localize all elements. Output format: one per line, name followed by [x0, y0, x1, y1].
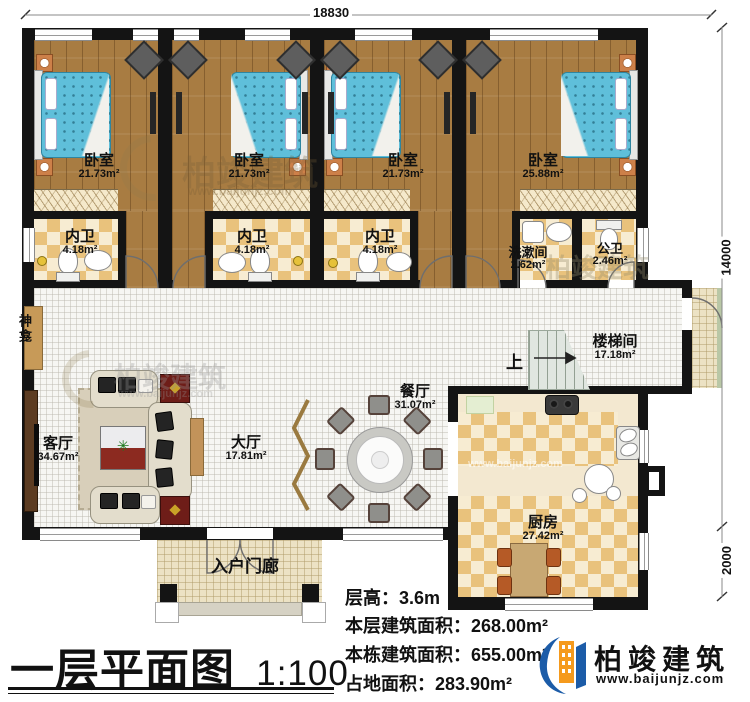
kitchen-bowl — [606, 486, 621, 501]
title-underline-thin — [8, 693, 334, 694]
side-table — [160, 496, 190, 525]
title-underline — [8, 687, 334, 690]
room-label-ensuite1: 内卫4.18m² — [63, 229, 98, 256]
window-public-bath — [637, 228, 649, 262]
room-label-bedroom2: 卧室21.73m² — [229, 153, 270, 180]
floor-drain — [37, 256, 47, 266]
wall-hall-top-7 — [634, 280, 692, 288]
bed-fold — [231, 72, 259, 156]
wall-hall-top-3 — [205, 280, 420, 288]
room-label-porch: 入户门廊 — [211, 558, 279, 576]
side-table — [160, 374, 190, 403]
door-panel — [470, 92, 476, 134]
door-panel — [176, 92, 182, 134]
window-bedroom3 — [355, 29, 412, 41]
room-label-stairwell: 楼梯间17.18m² — [592, 334, 637, 361]
wardrobe-bedroom4 — [520, 189, 636, 213]
sofa-cushion — [138, 379, 153, 393]
bed-pillow — [335, 118, 347, 150]
sofa-cushion — [141, 495, 156, 509]
porch-side-step — [155, 602, 179, 623]
room-label-washroom: 洗漱间2.62m² — [508, 246, 547, 271]
dining-chair — [368, 395, 390, 415]
window-bedroom1-a — [35, 29, 92, 41]
sofa-cushion — [155, 411, 174, 432]
kitchen-chair — [546, 548, 561, 567]
room-label-bedroom3: 卧室21.73m² — [383, 153, 424, 180]
dining-chair — [423, 448, 443, 470]
window-bedroom2-a — [174, 29, 199, 41]
stove-burner — [549, 399, 559, 409]
washroom-sink — [546, 222, 572, 242]
table-ornament — [169, 382, 180, 393]
kitchen-chair — [497, 548, 512, 567]
sofa-cushion — [100, 493, 118, 509]
window-kitchen-bottom — [505, 598, 593, 611]
bed-fold — [561, 72, 589, 156]
info-footprint-area: 占地面积：283.90m² — [345, 670, 512, 696]
kitchen-flue-inner — [649, 472, 659, 490]
sideboard — [190, 418, 204, 476]
porch-column — [302, 584, 319, 603]
porch-column — [160, 584, 177, 603]
wall-bath-top-1 — [22, 211, 118, 219]
floor-drain — [293, 256, 303, 266]
washroom-basin — [522, 221, 544, 243]
brand-logo-icon — [534, 633, 592, 697]
entry-door-opening — [207, 528, 273, 539]
bed-pillow — [285, 118, 297, 150]
info-building-area: 本栋建筑面积：655.00m² — [345, 641, 548, 667]
wall-washroom-right — [572, 211, 582, 288]
kitchen-bowl — [572, 488, 587, 503]
wardrobe-bedroom1 — [34, 189, 118, 213]
table-ornament — [169, 504, 180, 515]
wall-kitchen-right — [638, 394, 648, 610]
kitchen-chair — [497, 576, 512, 595]
wall-ensuite2-left — [205, 211, 213, 288]
floor-corridor4 — [466, 211, 512, 288]
room-label-bedroom1: 卧室21.73m² — [79, 153, 120, 180]
wall-ensuite3-right — [410, 211, 418, 288]
sofa-cushion — [122, 493, 140, 509]
stove-burner — [563, 399, 573, 409]
sofa-cushion — [118, 377, 136, 393]
dining-table-hub — [371, 451, 389, 469]
bed-pillow — [285, 78, 297, 110]
door-panel — [444, 92, 450, 134]
room-label-living: 客厅34.67m² — [38, 436, 79, 463]
sofa-cushion — [155, 467, 174, 488]
wall-ensuite1-right — [118, 211, 126, 288]
door-panel — [302, 92, 308, 134]
nightstand — [36, 158, 53, 176]
stairs-up-label: 上 — [506, 348, 523, 373]
door-panel — [328, 92, 334, 134]
info-floor-area: 本层建筑面积：268.00m² — [345, 612, 548, 638]
porch-step — [177, 602, 302, 616]
toilet-tank — [356, 272, 380, 282]
wall-hall-top-2 — [158, 280, 173, 288]
dimension-right-height: 14000 — [719, 236, 734, 278]
nightstand — [326, 158, 343, 176]
bed-pillow — [615, 78, 627, 110]
dining-chair — [315, 448, 335, 470]
kitchen-chair — [546, 576, 561, 595]
wardrobe-bedroom3 — [324, 189, 410, 213]
bed-pillow — [45, 118, 57, 150]
side-door-opening — [683, 298, 691, 330]
wall-bath-top-3 — [324, 211, 410, 219]
dining-chair — [368, 503, 390, 523]
toilet-tank — [248, 272, 272, 282]
toilet-tank — [56, 272, 80, 282]
logo-building-blue — [576, 642, 586, 689]
wall-stair-right-b — [682, 330, 692, 394]
window-kitchen-right-a — [639, 430, 649, 463]
floor-corridor3 — [418, 211, 452, 288]
kitchen-mat — [466, 396, 494, 414]
room-label-bedroom4: 卧室25.88m² — [523, 153, 564, 180]
logo-building-orange — [559, 641, 574, 683]
wall-hall-top-4 — [452, 280, 466, 288]
bed-fold — [371, 72, 399, 156]
door-panel — [150, 92, 156, 134]
bed-pillow — [335, 78, 347, 110]
floor-drain — [328, 258, 338, 268]
coffee-table: ✳ — [100, 426, 146, 470]
wall-bath-top-2 — [205, 211, 310, 219]
room-label-dining: 餐厅31.07m² — [395, 384, 436, 411]
sofa-cushion — [155, 439, 174, 460]
wall-hall-top-6 — [546, 280, 608, 288]
wall-stair-right-a — [682, 288, 692, 298]
dimension-top-width: 18830 — [310, 5, 352, 20]
nightstand — [619, 158, 636, 176]
info-floor-height: 层高：3.6m — [345, 584, 440, 610]
window-bedroom1-b — [133, 29, 158, 41]
window-kitchen-right-b — [639, 533, 649, 570]
floor-corridor2 — [172, 211, 205, 288]
window-dining — [343, 528, 443, 541]
window-ensuite1 — [23, 228, 35, 262]
room-label-ensuite3: 内卫4.18m² — [363, 229, 398, 256]
window-bedroom4 — [490, 29, 598, 41]
shrine-label: 神龛 — [19, 314, 34, 344]
room-label-hall: 大厅17.81m² — [226, 435, 267, 462]
window-bedroom2-b — [245, 29, 290, 41]
room-label-public-bath: 公卫2.46m² — [593, 242, 628, 267]
floor-corridor1 — [126, 211, 158, 288]
wardrobe-bedroom2 — [213, 189, 310, 213]
room-label-kitchen: 厨房27.42m² — [523, 515, 564, 542]
kitchen-table — [510, 543, 548, 597]
bed-pillow — [615, 118, 627, 150]
wall-divider3 — [452, 28, 466, 288]
bed-fold — [81, 72, 109, 156]
nightstand — [289, 158, 306, 176]
wall-hall-top-5 — [500, 280, 518, 288]
side-porch-edge — [717, 288, 722, 388]
plant-icon: ✳ — [117, 438, 130, 455]
dimension-right-lower: 2000 — [719, 543, 734, 578]
floor-plan-page: ✳ — [0, 0, 750, 702]
room-label-ensuite2: 内卫4.18m² — [235, 229, 270, 256]
porch-side-step — [302, 602, 326, 623]
kitchen-counter-island — [458, 412, 620, 466]
brand-website: www.baijunjz.com — [596, 671, 724, 686]
wall-kitchen-left-b — [448, 496, 458, 610]
bed-pillow — [45, 78, 57, 110]
wall-kitchen-left-a — [448, 394, 458, 422]
window-living — [40, 528, 140, 541]
wall-divider2 — [310, 28, 324, 288]
